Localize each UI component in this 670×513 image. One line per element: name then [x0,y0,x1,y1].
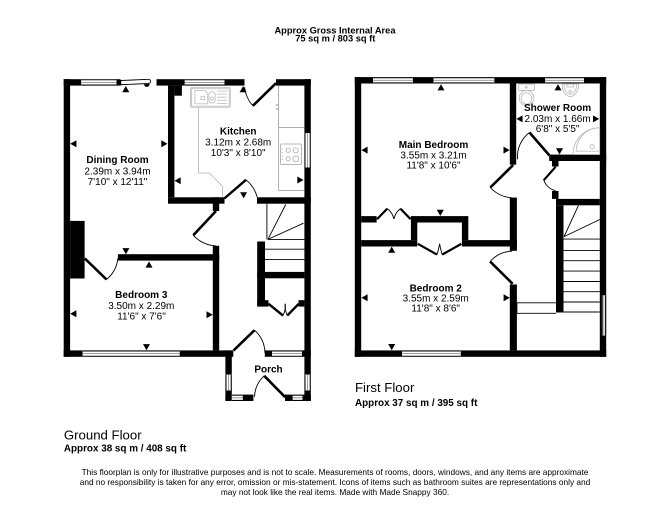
svg-text:This floorplan is only for ill: This floorplan is only for illustrative … [82,467,589,477]
svg-text:Porch: Porch [254,364,282,375]
svg-text:11'6" x 7'6": 11'6" x 7'6" [117,312,166,323]
svg-text:2.39m x 3.94m: 2.39m x 3.94m [84,167,150,178]
svg-text:10'3" x 8'10": 10'3" x 8'10" [211,148,266,159]
svg-text:may not look like the real ite: may not look like the real items. Made w… [221,487,449,497]
svg-text:75 sq m / 803 sq ft: 75 sq m / 803 sq ft [295,34,375,44]
svg-text:3.50m x 2.29m: 3.50m x 2.29m [108,301,174,312]
svg-text:First Floor: First Floor [355,380,415,395]
svg-text:Ground Floor: Ground Floor [64,428,142,443]
svg-text:Kitchen: Kitchen [220,127,257,138]
svg-text:Shower Room: Shower Room [524,103,591,114]
svg-text:7'10" x 12'11": 7'10" x 12'11" [88,177,148,188]
svg-text:11'8" x 8'6": 11'8" x 8'6" [411,304,460,315]
svg-text:6'8" x 5'5": 6'8" x 5'5" [536,124,580,135]
svg-text:11'8" x 10'6": 11'8" x 10'6" [406,161,461,172]
svg-text:Approx 38 sq m / 408 sq ft: Approx 38 sq m / 408 sq ft [64,443,187,454]
svg-text:Dining Room: Dining Room [86,155,148,166]
svg-text:Approx 37 sq m / 395 sq ft: Approx 37 sq m / 395 sq ft [355,398,478,409]
svg-text:Bedroom 3: Bedroom 3 [115,290,168,301]
svg-text:and no responsibility is taken: and no responsibility is taken for any e… [80,477,591,487]
svg-text:Main Bedroom: Main Bedroom [399,140,469,151]
